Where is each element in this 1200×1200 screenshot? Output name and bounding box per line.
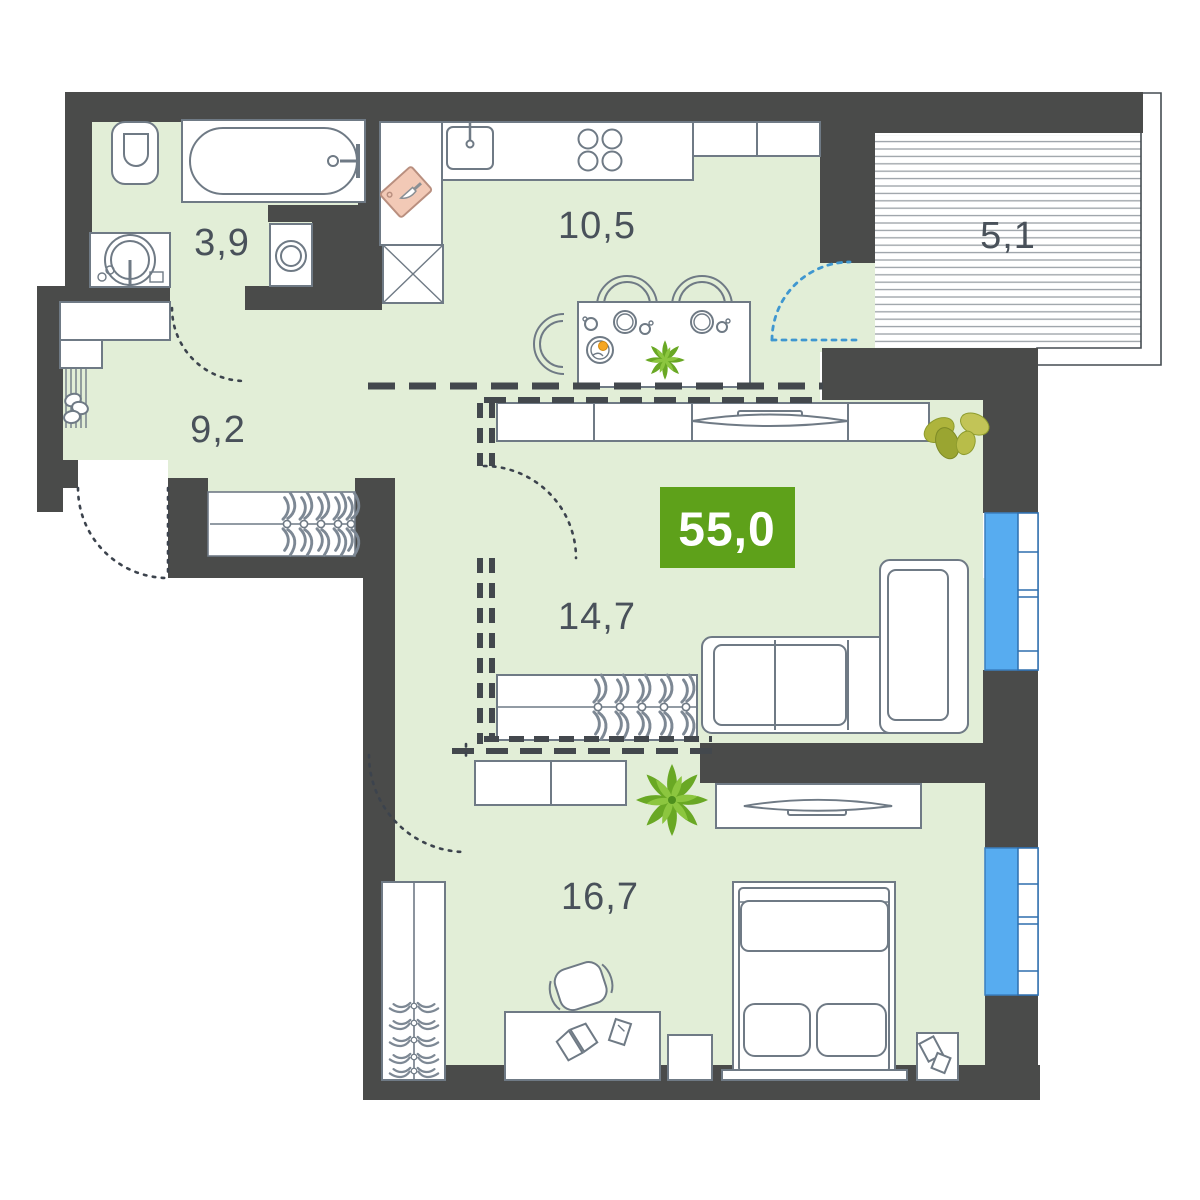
balcony-area-label: 5,1 (980, 215, 1036, 257)
bed (722, 882, 907, 1080)
floor-plan-canvas: 3,9 10,5 5,1 9,2 14,7 16,7 55,0 (0, 0, 1200, 1200)
bathroom-sink (90, 233, 170, 287)
table-plant-icon (645, 340, 685, 380)
bedroom-window (985, 848, 1038, 995)
entrance-door-arc (78, 488, 168, 578)
living-room-window (985, 513, 1038, 670)
bathtub (182, 120, 365, 202)
nightstand (917, 1033, 958, 1080)
washing-machine (270, 224, 312, 286)
bedroom-area-label: 16,7 (561, 876, 639, 918)
fridge (383, 245, 443, 303)
toilet (112, 122, 158, 184)
hallway-area-label: 9,2 (190, 409, 246, 451)
bathroom-area-label: 3,9 (194, 222, 250, 264)
floor-plan: 3,9 10,5 5,1 9,2 14,7 16,7 55,0 (0, 0, 1200, 1200)
dresser (475, 761, 626, 805)
bedroom-plant-icon (636, 764, 708, 836)
total-area-badge: 55,0 (660, 487, 795, 568)
desk (505, 1012, 660, 1080)
living-wardrobe (497, 675, 697, 740)
kitchen-area-label: 10,5 (558, 205, 636, 247)
bedroom-wardrobe (382, 882, 445, 1080)
total-area-value: 55,0 (678, 504, 775, 557)
stool (668, 1035, 712, 1080)
living-room-area-label: 14,7 (558, 596, 636, 638)
entry-closet (208, 492, 359, 556)
